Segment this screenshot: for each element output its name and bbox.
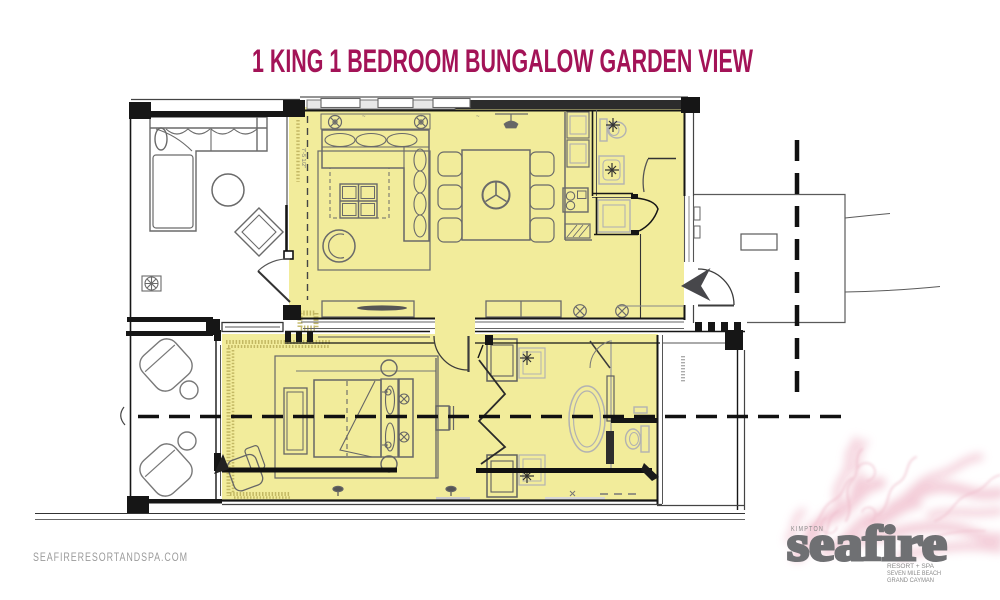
svg-text:~: ~ <box>419 114 423 120</box>
svg-text:~: ~ <box>362 114 366 120</box>
svg-text:1 KING 1 BEDROOM BUNGALOW GARD: 1 KING 1 BEDROOM BUNGALOW GARDEN VIEW <box>252 43 754 79</box>
svg-text:SEVEN MILE BEACH: SEVEN MILE BEACH <box>887 571 941 577</box>
svg-text:GRAND CAYMAN: GRAND CAYMAN <box>887 578 934 584</box>
svg-text:~: ~ <box>476 114 480 120</box>
svg-text:7'-5 1/2": 7'-5 1/2" <box>300 148 306 168</box>
svg-text:RESORT + SPA: RESORT + SPA <box>887 564 934 570</box>
svg-text:seafire: seafire <box>787 515 947 571</box>
svg-text:SEAFIRERESORTANDSPA.COM: SEAFIRERESORTANDSPA.COM <box>33 552 188 564</box>
